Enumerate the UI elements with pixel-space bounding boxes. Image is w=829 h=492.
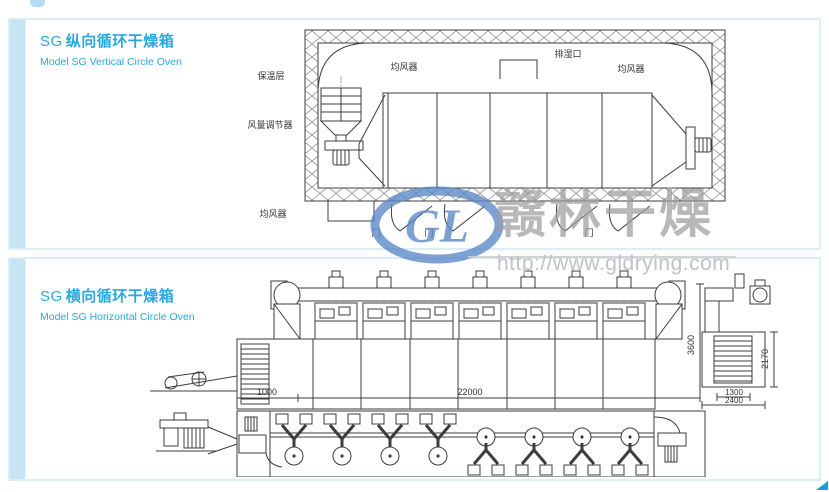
bottom-air-duct (328, 201, 374, 221)
vertical-oven-title-block: SG纵向循环干燥箱 Model SG Vertical Circle Oven (40, 30, 182, 68)
label-door-3: 门 (584, 227, 593, 238)
drying-chamber (383, 93, 652, 188)
catalog-page: SG纵向循环干燥箱 Model SG Vertical Circle Oven (0, 0, 829, 492)
elevation-view: 1000 22000 3600 (150, 271, 704, 409)
dim-overall-height: 3600 (686, 335, 696, 355)
dim-side-overall-width: 2400 (725, 396, 743, 405)
label-moisture-exhaust: 排湿口 (554, 48, 581, 59)
corner-accent-triangle (816, 481, 828, 490)
label-air-distributor-top: 均风器 (390, 61, 417, 72)
label-air-distributor-bottom: 均风器 (259, 208, 286, 219)
label-door-2: 门 (424, 227, 433, 238)
access-doors (391, 204, 650, 231)
detail-callout (156, 413, 237, 454)
label-air-volume-regulator: 风量调节器 (247, 120, 292, 130)
label-door-1: 门 (371, 227, 380, 238)
title-chinese: 横向循环干燥箱 (66, 288, 175, 305)
dim-total-length: 22000 (457, 387, 482, 397)
vertical-oven-panel: SG纵向循环干燥箱 Model SG Vertical Circle Oven (8, 18, 821, 250)
page-title: SG纵向循环干燥箱 (40, 30, 182, 51)
horizontal-oven-panel: SG横向循环干燥箱 Model SG Horizontal Circle Ove… (8, 257, 821, 481)
feed-conveyor (150, 372, 237, 391)
circulation-motors (329, 271, 631, 288)
title-english: Model SG Horizontal Circle Oven (40, 311, 195, 323)
title-chinese: 纵向循环干燥箱 (66, 33, 175, 50)
page-corner-fragment (30, 0, 45, 7)
model-code: SG (40, 288, 63, 305)
model-code: SG (40, 33, 63, 50)
side-view: 2170 1300 2400 (702, 274, 778, 409)
air-handling-units (315, 303, 645, 339)
plan-view (156, 411, 705, 477)
label-air-distributor-right: 均风器 (617, 63, 644, 74)
horizontal-oven-title-block: SG横向循环干燥箱 Model SG Horizontal Circle Ove… (40, 285, 195, 323)
dim-side-height: 2170 (760, 349, 770, 369)
dim-inlet-section: 1000 (257, 387, 277, 397)
label-insulation-layer: 保温层 (257, 70, 284, 81)
page-title: SG横向循环干燥箱 (40, 285, 195, 306)
title-english: Model SG Vertical Circle Oven (40, 56, 182, 68)
